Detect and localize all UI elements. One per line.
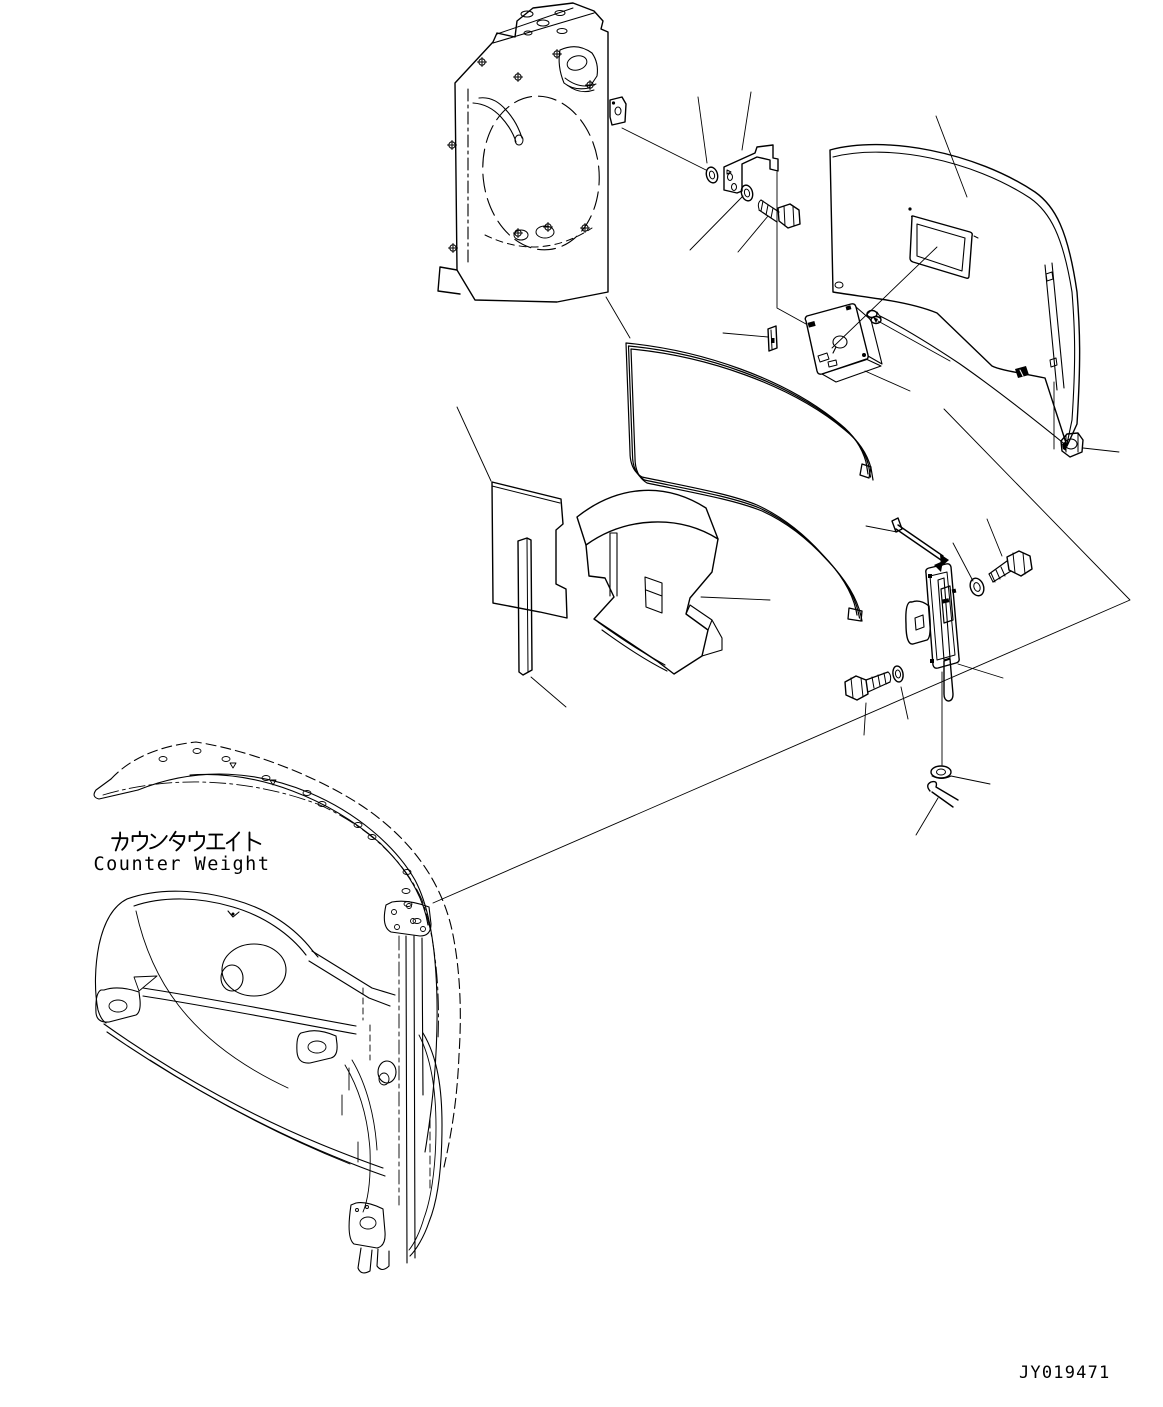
insulation-block xyxy=(577,490,722,674)
label-jp xyxy=(112,832,260,851)
washer-icon xyxy=(931,766,951,779)
seal-strip xyxy=(626,343,873,621)
label-en: Counter Weight xyxy=(94,854,271,875)
lock-rod-icon xyxy=(892,518,949,567)
insulation-strip xyxy=(518,538,532,675)
leader-lines xyxy=(457,92,1119,835)
insulation-sheet xyxy=(492,482,567,618)
projection-lines xyxy=(433,409,1130,903)
latch-side-bracket xyxy=(906,601,930,644)
parts-diagram-canvas: Counter Weight JY019471 xyxy=(0,0,1163,1407)
cotter-pin-icon xyxy=(928,782,958,807)
bolt-icon xyxy=(845,672,891,700)
lock-clip-icon xyxy=(768,326,777,351)
mount-bracket-assembly xyxy=(705,145,800,228)
cover-window-opening xyxy=(908,207,978,278)
bolt-icon xyxy=(989,551,1032,582)
washer-icon xyxy=(892,665,905,682)
washer-icon xyxy=(705,166,720,184)
counterweight-bottom-bracket xyxy=(349,1203,389,1273)
bolt-icon xyxy=(758,200,800,228)
frame-bolt-marks xyxy=(448,50,595,253)
rear-cover-panel xyxy=(830,145,1080,446)
fan-guard-frame xyxy=(438,3,626,302)
washer-icon xyxy=(968,576,986,597)
counterweight xyxy=(94,742,460,1273)
latch-assembly xyxy=(845,433,1083,807)
lock-assembly xyxy=(768,304,882,382)
counterweight-lugs-and-bars xyxy=(96,951,395,1212)
drawing-number: JY019471 xyxy=(1019,1363,1110,1383)
